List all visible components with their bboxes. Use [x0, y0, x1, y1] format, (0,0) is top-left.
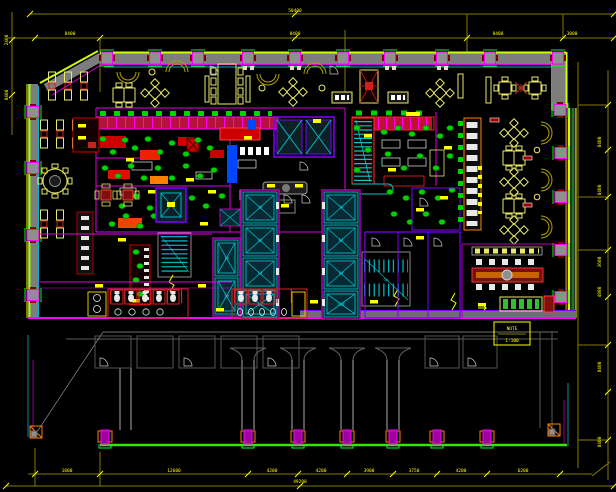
svg-text:8400: 8400	[65, 31, 76, 37]
svg-text:3600: 3600	[597, 256, 603, 267]
dim-top-total: 50400	[288, 8, 302, 14]
stairs-east: UP	[362, 252, 410, 306]
buffet-island	[461, 118, 482, 230]
ahu-shafts	[274, 117, 334, 157]
svg-text:8400: 8400	[597, 184, 603, 195]
stair-up-label: UP	[383, 276, 390, 283]
svg-text:8400: 8400	[493, 31, 504, 37]
direction-arrow	[478, 306, 486, 310]
svg-text:6200: 6200	[518, 468, 529, 474]
svg-text:4200: 4200	[267, 468, 278, 474]
display-cabinets	[332, 70, 408, 103]
svg-text:2#: 2#	[224, 294, 229, 299]
annex-structure	[28, 332, 568, 448]
cad-canvas: 50400 8400 8400 8400 3000 8400 8400 3600…	[0, 0, 616, 492]
svg-text:1#: 1#	[224, 256, 229, 261]
svg-text:1800: 1800	[62, 468, 73, 474]
svg-text:7#: 7#	[339, 205, 344, 210]
note-line2: 1:100	[505, 338, 519, 344]
structural-columns	[25, 50, 569, 305]
svg-text:4200: 4200	[456, 468, 467, 474]
stairs-west	[158, 233, 191, 292]
svg-text:2400: 2400	[4, 34, 10, 45]
floor-plan-drawing: 50400 8400 8400 8400 3000 8400 8400 3600…	[0, 0, 616, 492]
decor-cross	[515, 82, 527, 94]
karaoke-sofa	[500, 296, 554, 312]
svg-text:4200: 4200	[316, 468, 327, 474]
svg-text:8400: 8400	[4, 89, 10, 100]
svg-text:10#: 10#	[337, 302, 345, 307]
private-dining-room	[462, 244, 556, 318]
svg-text:9#: 9#	[339, 271, 344, 276]
note-line1: NOTE	[507, 326, 518, 332]
dim-bottom-total: 49200	[293, 479, 307, 485]
banquet-table	[205, 64, 250, 104]
svg-text:8400: 8400	[597, 436, 603, 447]
svg-text:8400: 8400	[597, 361, 603, 372]
dining-zone-right	[461, 118, 553, 244]
svg-text:3#: 3#	[258, 205, 263, 210]
svg-text:3900: 3900	[364, 468, 375, 474]
dimension-lines-right	[578, 62, 611, 480]
svg-text:3750: 3750	[409, 468, 420, 474]
red-table-sets	[95, 184, 139, 206]
svg-text:12600: 12600	[167, 468, 181, 474]
svg-text:8400: 8400	[290, 31, 301, 37]
svg-text:3000: 3000	[567, 31, 578, 37]
svg-text:4#: 4#	[258, 238, 263, 243]
svg-text:4800: 4800	[597, 286, 603, 297]
note-box: NOTE 1:100	[494, 322, 530, 345]
svg-text:5#: 5#	[258, 271, 263, 276]
service-elevator-west	[156, 188, 186, 222]
back-of-house-rooms	[365, 188, 460, 318]
svg-text:8400: 8400	[597, 136, 603, 147]
svg-text:8#: 8#	[339, 238, 344, 243]
